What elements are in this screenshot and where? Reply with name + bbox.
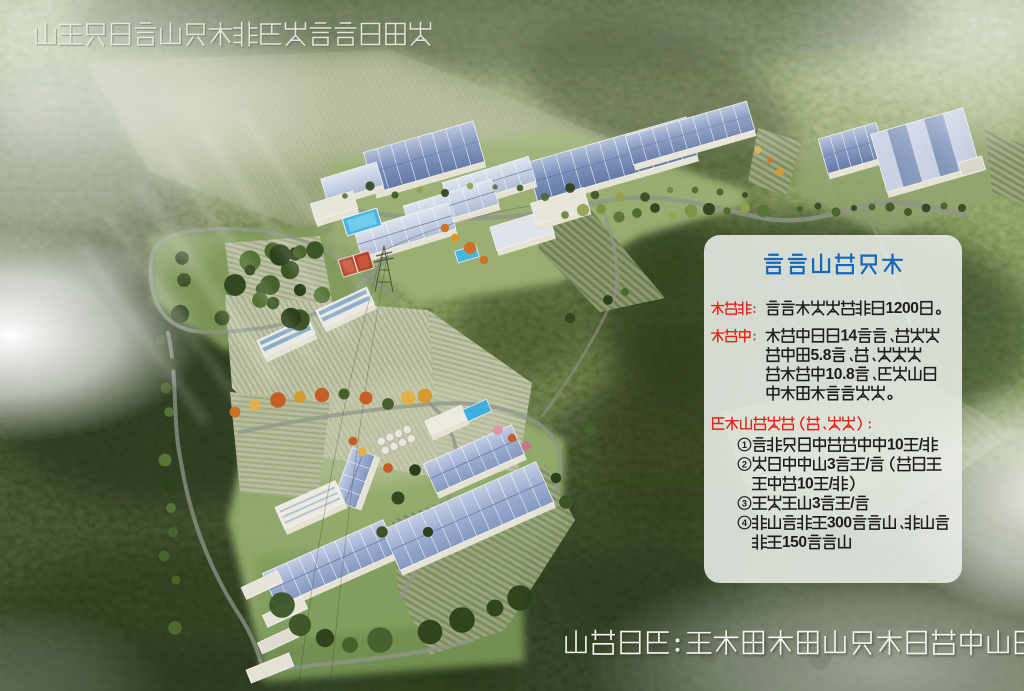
svg-text:1200: 1200 bbox=[886, 300, 920, 317]
svg-text:4: 4 bbox=[742, 518, 748, 528]
svg-text:10: 10 bbox=[797, 476, 814, 493]
svg-text:300: 300 bbox=[827, 515, 852, 532]
svg-text:5.8: 5.8 bbox=[811, 347, 832, 364]
svg-text:/: / bbox=[850, 495, 855, 512]
svg-text:14: 14 bbox=[841, 328, 858, 345]
svg-text:/: / bbox=[865, 456, 870, 473]
svg-text:10: 10 bbox=[887, 437, 904, 454]
svg-text:10.8: 10.8 bbox=[826, 366, 856, 383]
svg-text:150: 150 bbox=[782, 534, 807, 551]
svg-text:/: / bbox=[919, 437, 924, 454]
svg-text:3: 3 bbox=[742, 499, 747, 509]
svg-text:2: 2 bbox=[742, 460, 747, 470]
svg-text:3: 3 bbox=[827, 456, 836, 473]
svg-text:1: 1 bbox=[742, 440, 747, 450]
svg-text:3: 3 bbox=[812, 495, 821, 512]
svg-text:/: / bbox=[829, 476, 834, 493]
